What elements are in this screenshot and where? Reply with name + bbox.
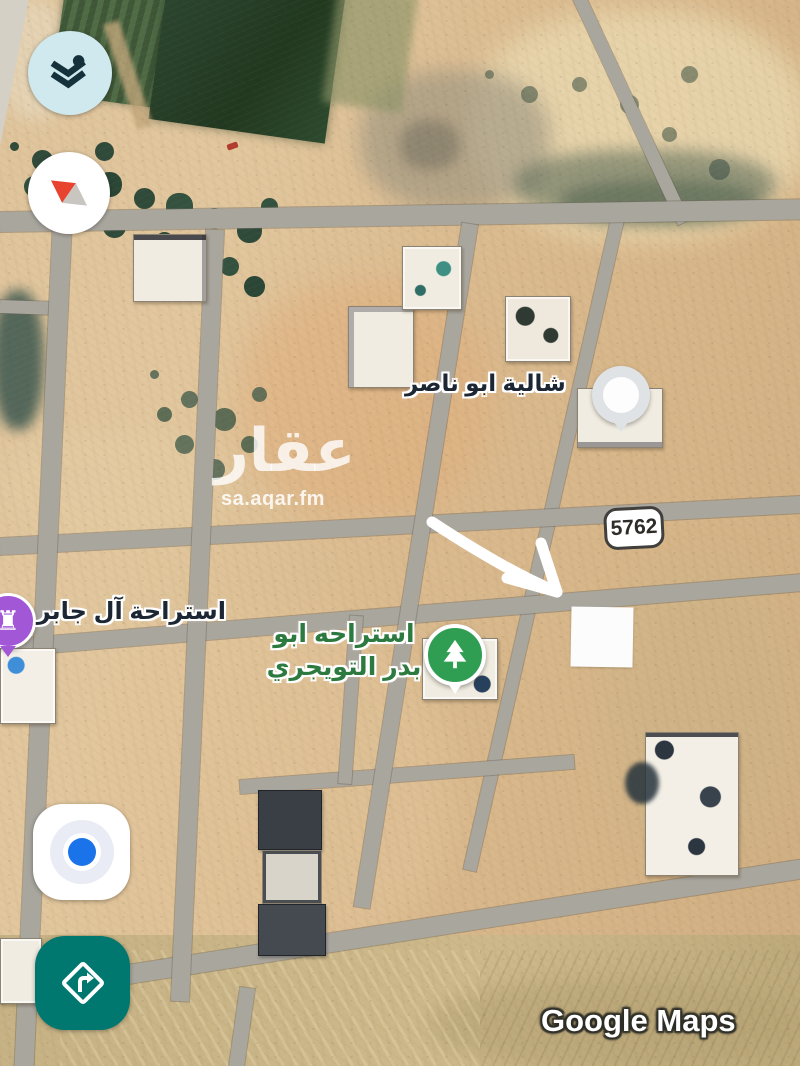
road-5762 — [0, 496, 800, 555]
turn-right-diamond-icon — [60, 960, 106, 1006]
highlighted-plot-square — [570, 606, 633, 667]
green-tree-pin-icon — [424, 624, 486, 686]
road-vertical-bottom — [228, 987, 255, 1066]
compass-button[interactable] — [28, 152, 110, 234]
google-maps-attribution: Google Maps — [541, 1003, 736, 1039]
building-dark — [258, 790, 322, 850]
road-horizontal-short — [239, 755, 574, 794]
place-pin-al-jaber[interactable]: ♜ — [0, 593, 36, 649]
place-pin-abu-badr[interactable] — [424, 624, 486, 686]
blue-location-dot-icon — [50, 820, 114, 884]
turn-right-arrow — [60, 960, 106, 1006]
layers-button[interactable] — [28, 31, 112, 115]
farm-field — [148, 0, 345, 144]
parked-car — [226, 141, 238, 150]
building-compound — [0, 648, 56, 724]
pine-tree-icon — [438, 638, 472, 672]
purple-rook-pin-icon: ♜ — [0, 593, 36, 649]
pin-tail — [613, 421, 629, 432]
building-compound — [402, 246, 462, 310]
aqar-domain-watermark: sa.aqar.fm — [193, 488, 353, 511]
label-abu-badr-line1: استراحه ابو — [255, 618, 433, 651]
building-compound — [133, 234, 207, 302]
tree-cluster — [485, 70, 494, 79]
directions-button[interactable] — [35, 936, 130, 1030]
layers-icon — [47, 50, 93, 96]
place-pin-chalet-abu-nasser[interactable] — [592, 366, 650, 424]
terrain-rubble — [400, 120, 460, 170]
building-dark — [258, 904, 326, 956]
route-badge-5762: 5762 — [603, 505, 665, 550]
label-al-jaber[interactable]: استراحة آل جابر — [36, 597, 226, 626]
compass-needle-icon — [38, 162, 99, 223]
building-compound — [505, 296, 571, 362]
aqar-watermark: عقار — [213, 416, 357, 486]
google-maps-satellite-view[interactable]: عقار sa.aqar.fm شالية ابو ناصر ♜ استراحة… — [0, 0, 800, 1066]
farm-field — [322, 0, 418, 113]
label-abu-badr[interactable]: استراحه ابو بدر التويجري — [255, 618, 433, 683]
pin-tail — [447, 682, 463, 694]
building-compound — [262, 850, 322, 904]
road-horizontal-top — [0, 199, 800, 232]
label-abu-badr-line2: بدر التويجري — [255, 651, 433, 684]
label-chalet-abu-nasser[interactable]: شالية ابو ناصر — [405, 370, 587, 397]
tree-cluster — [10, 142, 19, 151]
road-diagonal-top — [572, 0, 690, 225]
tree-cluster — [150, 370, 159, 379]
route-number: 5762 — [610, 515, 658, 541]
my-location-button[interactable] — [33, 804, 130, 900]
building-compound — [645, 732, 739, 876]
pin-tail — [0, 646, 16, 657]
rook-icon: ♜ — [0, 608, 20, 635]
road-edge-left — [0, 0, 30, 181]
